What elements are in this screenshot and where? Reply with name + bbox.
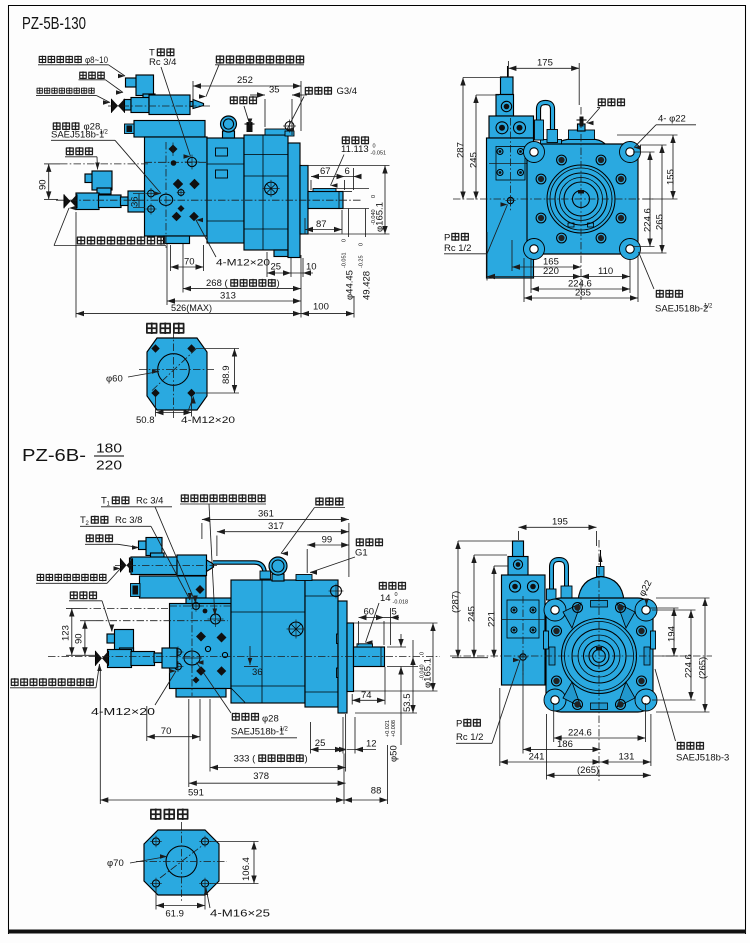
svg-text:): ) — [277, 278, 280, 289]
svg-text:106.4: 106.4 — [241, 857, 252, 881]
svg-text:90: 90 — [38, 179, 49, 190]
svg-text:φ50: φ50 — [389, 745, 400, 762]
svg-text:-0.040: -0.040 — [371, 209, 377, 225]
svg-text:180: 180 — [96, 441, 122, 456]
svg-text:φ8~10: φ8~10 — [85, 55, 108, 65]
svg-text:313: 313 — [220, 291, 236, 302]
svg-text:60: 60 — [364, 607, 375, 618]
svg-text:SAEJ518b-2: SAEJ518b-2 — [655, 304, 708, 315]
svg-text:100: 100 — [313, 302, 329, 313]
svg-text:1/2: 1/2 — [704, 304, 713, 310]
svg-text:-0.018: -0.018 — [393, 600, 409, 606]
svg-text:G1: G1 — [355, 548, 368, 559]
svg-text:74: 74 — [361, 690, 372, 701]
svg-text:99: 99 — [322, 535, 333, 546]
svg-text:245: 245 — [469, 152, 480, 168]
svg-text:268 (: 268 ( — [206, 278, 228, 289]
svg-text:): ) — [305, 754, 308, 765]
svg-text:70: 70 — [161, 726, 172, 737]
svg-text:4-M12×20: 4-M12×20 — [181, 415, 235, 426]
svg-text:0: 0 — [420, 652, 426, 655]
svg-text:0: 0 — [371, 195, 377, 198]
svg-text:36: 36 — [252, 667, 263, 678]
svg-text:186: 186 — [557, 739, 573, 750]
svg-text:5: 5 — [392, 607, 397, 618]
svg-text:1/2: 1/2 — [100, 130, 109, 136]
svg-text:155: 155 — [666, 169, 677, 185]
svg-text:195: 195 — [552, 517, 568, 528]
svg-text:PZ-6B-: PZ-6B- — [22, 445, 86, 465]
svg-text:53.5: 53.5 — [402, 694, 413, 713]
svg-text:224.6: 224.6 — [568, 728, 592, 739]
svg-text:14: 14 — [380, 593, 391, 604]
svg-text:50.8: 50.8 — [136, 415, 155, 426]
svg-text:-0.040: -0.040 — [420, 664, 426, 680]
svg-text:591: 591 — [188, 788, 204, 799]
svg-text:61.9: 61.9 — [165, 909, 184, 920]
svg-text:(265): (265) — [577, 765, 599, 776]
svg-text:0: 0 — [395, 592, 398, 598]
svg-text:-0.25: -0.25 — [359, 255, 365, 268]
svg-text:(265): (265) — [698, 657, 709, 679]
svg-text:SAEJ518b-1: SAEJ518b-1 — [231, 727, 284, 738]
svg-text:265: 265 — [575, 288, 591, 299]
svg-text:(287): (287) — [451, 591, 462, 613]
svg-text:49.428: 49.428 — [362, 271, 373, 300]
svg-text:25: 25 — [271, 262, 282, 273]
svg-text:φ44.45: φ44.45 — [345, 270, 356, 300]
svg-text:Rc 1/2: Rc 1/2 — [456, 732, 483, 743]
svg-text:67: 67 — [320, 166, 331, 177]
svg-text:0: 0 — [342, 239, 348, 242]
svg-text:224.6: 224.6 — [684, 654, 695, 678]
svg-text:361: 361 — [258, 509, 274, 520]
svg-text:224.6: 224.6 — [643, 208, 654, 232]
svg-text:123: 123 — [61, 625, 72, 641]
svg-text:-0.051: -0.051 — [342, 252, 348, 268]
svg-text:35: 35 — [269, 85, 280, 96]
svg-text:P: P — [456, 719, 462, 730]
svg-text:4-M16×25: 4-M16×25 — [210, 908, 270, 920]
svg-text:Rc 3/4: Rc 3/4 — [136, 496, 163, 507]
svg-text:70: 70 — [184, 257, 195, 268]
svg-text:Rc 1/2: Rc 1/2 — [444, 243, 471, 254]
svg-text:1/2: 1/2 — [280, 727, 289, 733]
svg-text:SAEJ518b-1: SAEJ518b-1 — [51, 130, 104, 141]
svg-text:-0.051: -0.051 — [371, 151, 387, 157]
svg-text:36: 36 — [130, 196, 141, 207]
svg-text:Rc 3/4: Rc 3/4 — [149, 57, 176, 68]
svg-text:12: 12 — [366, 739, 377, 750]
svg-text:φ28: φ28 — [262, 714, 279, 725]
svg-text:4-M12×20: 4-M12×20 — [216, 258, 270, 269]
svg-text:378: 378 — [253, 771, 269, 782]
svg-text:G3/4: G3/4 — [337, 86, 358, 97]
svg-text:6: 6 — [345, 166, 350, 177]
svg-text:0: 0 — [373, 144, 376, 150]
svg-text:87: 87 — [316, 219, 327, 230]
svg-text:317: 317 — [268, 521, 284, 532]
svg-text:220: 220 — [96, 458, 122, 473]
svg-text:PZ-5B-130: PZ-5B-130 — [22, 13, 86, 33]
svg-text:245: 245 — [467, 606, 478, 622]
svg-text:Rc 3/8: Rc 3/8 — [115, 515, 142, 526]
svg-text:265: 265 — [655, 214, 666, 230]
svg-text:0: 0 — [359, 243, 365, 246]
svg-text:10: 10 — [306, 262, 317, 273]
svg-text:221: 221 — [487, 611, 498, 627]
svg-text:P: P — [444, 233, 450, 244]
svg-text:25: 25 — [315, 738, 326, 749]
svg-text:175: 175 — [537, 58, 553, 69]
svg-text:11.113: 11.113 — [341, 144, 369, 155]
svg-text:SAEJ518b-3: SAEJ518b-3 — [676, 753, 729, 764]
svg-text:241: 241 — [529, 752, 545, 763]
svg-text:88.9: 88.9 — [221, 366, 232, 385]
svg-text:131: 131 — [619, 752, 635, 763]
svg-text:φ60: φ60 — [106, 374, 123, 385]
svg-text:4- φ22: 4- φ22 — [658, 114, 686, 125]
svg-text:φ70: φ70 — [107, 858, 124, 869]
svg-text:287: 287 — [456, 142, 467, 158]
svg-text:4-M12×20: 4-M12×20 — [91, 706, 155, 718]
svg-text:220: 220 — [543, 266, 559, 277]
svg-text:88: 88 — [371, 786, 382, 797]
svg-text:252: 252 — [237, 75, 253, 86]
svg-text:90: 90 — [74, 633, 85, 644]
svg-text:110: 110 — [598, 266, 613, 277]
svg-text:526(MAX): 526(MAX) — [171, 303, 212, 314]
svg-text:333 (: 333 ( — [234, 754, 256, 765]
svg-text:194: 194 — [667, 626, 678, 642]
svg-text:+0.008: +0.008 — [391, 720, 397, 737]
